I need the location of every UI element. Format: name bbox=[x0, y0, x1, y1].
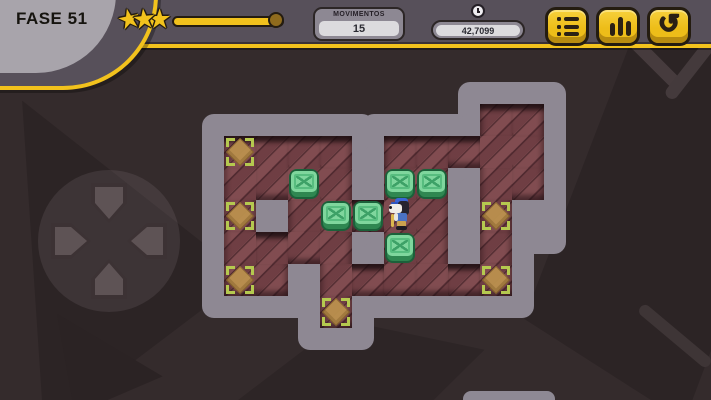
crate bbox=[353, 201, 383, 231]
floor-tile bbox=[256, 136, 288, 168]
floor-tile bbox=[512, 168, 544, 200]
floor-tile bbox=[480, 136, 512, 168]
stats-button[interactable] bbox=[596, 7, 640, 46]
target-tile bbox=[224, 200, 256, 232]
crate bbox=[321, 201, 351, 231]
menu-button[interactable] bbox=[545, 7, 589, 46]
floor-tile bbox=[320, 168, 352, 200]
floor-tile bbox=[480, 168, 512, 200]
floor-tile bbox=[224, 232, 256, 264]
crate bbox=[417, 169, 447, 199]
target-corner bbox=[501, 266, 510, 275]
target-corner bbox=[501, 221, 510, 230]
player-cane bbox=[391, 214, 394, 227]
target-corner bbox=[501, 285, 510, 294]
target-corner bbox=[482, 221, 491, 230]
list-icon bbox=[557, 17, 579, 36]
floor-tile bbox=[448, 264, 480, 296]
floor-tile bbox=[384, 136, 416, 168]
player-nose bbox=[389, 206, 392, 209]
floor-tile bbox=[448, 136, 480, 168]
floor-tile bbox=[416, 136, 448, 168]
target-tile bbox=[480, 264, 512, 296]
floor-tile bbox=[480, 232, 512, 264]
floor-tile bbox=[416, 232, 448, 264]
bars-icon bbox=[610, 16, 632, 36]
target-tile bbox=[224, 264, 256, 296]
target-corner bbox=[226, 138, 235, 147]
floor-tile bbox=[384, 264, 416, 296]
moves-panel: MOVIMENTOS 15 bbox=[313, 7, 405, 41]
crate-x-mark bbox=[422, 174, 442, 189]
floor-tile bbox=[416, 200, 448, 232]
target-corner bbox=[245, 202, 254, 211]
target-corner bbox=[482, 285, 491, 294]
target-tile bbox=[480, 200, 512, 232]
target-corner bbox=[245, 157, 254, 166]
floor-tile bbox=[320, 232, 352, 264]
floor-tile bbox=[256, 264, 288, 296]
floor-tile bbox=[416, 264, 448, 296]
crate-x-mark bbox=[390, 238, 410, 253]
floor-tile bbox=[320, 264, 352, 296]
timer-display: 42,7099 bbox=[431, 20, 525, 40]
floor-tile bbox=[224, 168, 256, 200]
header-buttons: ↺ bbox=[545, 7, 691, 46]
target-corner bbox=[245, 138, 254, 147]
crate-x-mark bbox=[390, 174, 410, 189]
target-tile bbox=[320, 296, 352, 328]
level-label: FASE 51 bbox=[16, 9, 88, 29]
dpad-control[interactable] bbox=[38, 170, 180, 312]
moves-value: 15 bbox=[319, 23, 399, 35]
crate bbox=[385, 169, 415, 199]
player-feet bbox=[396, 226, 407, 230]
moves-label: MOVIMENTOS bbox=[315, 11, 403, 18]
crate-top-face bbox=[355, 203, 381, 224]
player-character bbox=[389, 198, 411, 230]
moves-value-box: 15 bbox=[319, 21, 399, 36]
crate bbox=[289, 169, 319, 199]
target-corner bbox=[245, 266, 254, 275]
floor-tile bbox=[288, 232, 320, 264]
progress-knob bbox=[268, 12, 284, 28]
progress-bar bbox=[172, 16, 284, 27]
target-corner bbox=[226, 266, 235, 275]
floor-tile bbox=[256, 168, 288, 200]
target-corner bbox=[226, 221, 235, 230]
target-corner bbox=[322, 298, 331, 307]
target-corner bbox=[482, 266, 491, 275]
crate-top-face bbox=[291, 171, 317, 192]
crate-top-face bbox=[387, 171, 413, 192]
crate-x-mark bbox=[358, 206, 378, 221]
crate bbox=[385, 233, 415, 263]
target-corner bbox=[322, 317, 331, 326]
clock-icon bbox=[471, 4, 485, 18]
timer-value: 42,7099 bbox=[436, 26, 520, 36]
dpad-down-button[interactable] bbox=[91, 259, 127, 299]
floor-tile bbox=[480, 104, 512, 136]
floor-tile bbox=[288, 136, 320, 168]
crate-top-face bbox=[419, 171, 445, 192]
target-corner bbox=[245, 285, 254, 294]
dpad-up-button[interactable] bbox=[91, 183, 127, 223]
dpad-left-button[interactable] bbox=[51, 223, 91, 259]
floor-tile bbox=[512, 136, 544, 168]
floor-tile bbox=[288, 200, 320, 232]
target-corner bbox=[226, 202, 235, 211]
floor-tile bbox=[256, 232, 288, 264]
crate-top-face bbox=[323, 203, 349, 224]
target-corner bbox=[245, 221, 254, 230]
floor-tile bbox=[320, 136, 352, 168]
floor-tile bbox=[512, 104, 544, 136]
restart-button[interactable]: ↺ bbox=[647, 7, 691, 46]
target-corner bbox=[501, 202, 510, 211]
target-tile bbox=[224, 136, 256, 168]
game-screen: FASE 51 ★ ★ ★ MOVIMENTOS 15 42,7099 bbox=[0, 0, 711, 400]
crate-x-mark bbox=[294, 174, 314, 189]
restart-icon: ↺ bbox=[650, 8, 688, 39]
bottom-panel-peek bbox=[463, 391, 555, 400]
floor-tile bbox=[352, 264, 384, 296]
target-corner bbox=[341, 317, 350, 326]
target-corner bbox=[341, 298, 350, 307]
player-chest bbox=[394, 213, 398, 221]
target-corner bbox=[482, 202, 491, 211]
dpad-right-button[interactable] bbox=[127, 223, 167, 259]
crate-x-mark bbox=[326, 206, 346, 221]
target-corner bbox=[226, 157, 235, 166]
crate-top-face bbox=[387, 235, 413, 256]
stars-rating: ★ ★ ★ bbox=[117, 3, 172, 35]
target-corner bbox=[226, 285, 235, 294]
star-icon: ★ bbox=[131, 2, 158, 36]
